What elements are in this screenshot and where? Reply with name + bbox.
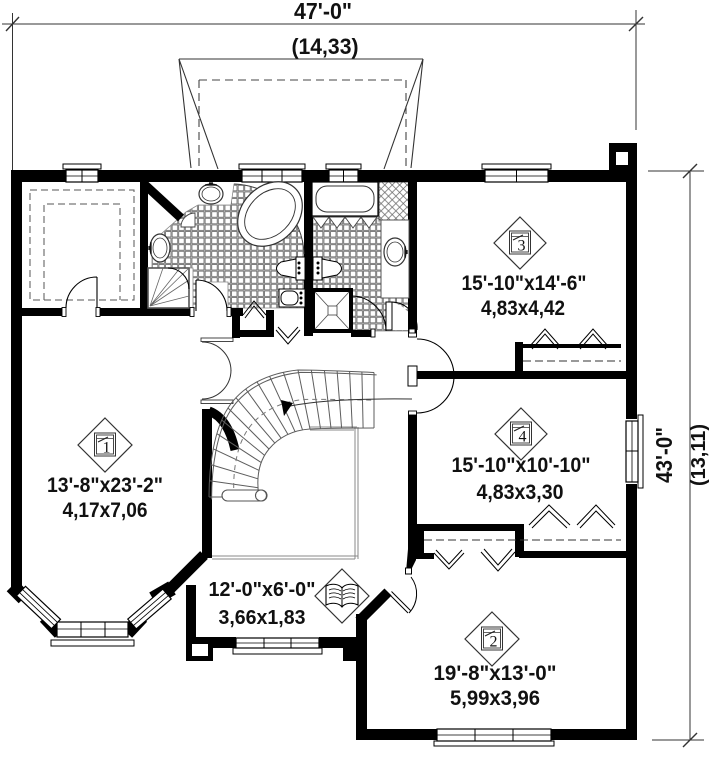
svg-text:1: 1 [103, 440, 111, 457]
svg-text:4,83x4,42: 4,83x4,42 [481, 297, 565, 320]
svg-text:5,99x3,96: 5,99x3,96 [450, 687, 540, 710]
svg-text:15'-10"x14'-6": 15'-10"x14'-6" [462, 272, 587, 295]
svg-text:47'-0": 47'-0" [294, 0, 352, 24]
svg-text:(13,11): (13,11) [688, 424, 710, 486]
svg-text:(14,33): (14,33) [292, 34, 359, 59]
svg-text:13'-8"x23'-2": 13'-8"x23'-2" [47, 474, 163, 497]
svg-text:15'-10"x10'-10": 15'-10"x10'-10" [452, 454, 591, 477]
svg-text:4,17x7,06: 4,17x7,06 [63, 499, 148, 522]
svg-text:4: 4 [519, 429, 527, 446]
svg-text:4,83x3,30: 4,83x3,30 [477, 481, 564, 504]
svg-text:3,66x1,83: 3,66x1,83 [219, 607, 306, 629]
svg-text:3: 3 [518, 238, 526, 255]
svg-text:12'-0"x6'-0": 12'-0"x6'-0" [209, 579, 316, 601]
svg-text:43'-0": 43'-0" [651, 427, 677, 483]
svg-text:19'-8"x13'-0": 19'-8"x13'-0" [434, 662, 557, 685]
svg-text:2: 2 [490, 634, 498, 651]
